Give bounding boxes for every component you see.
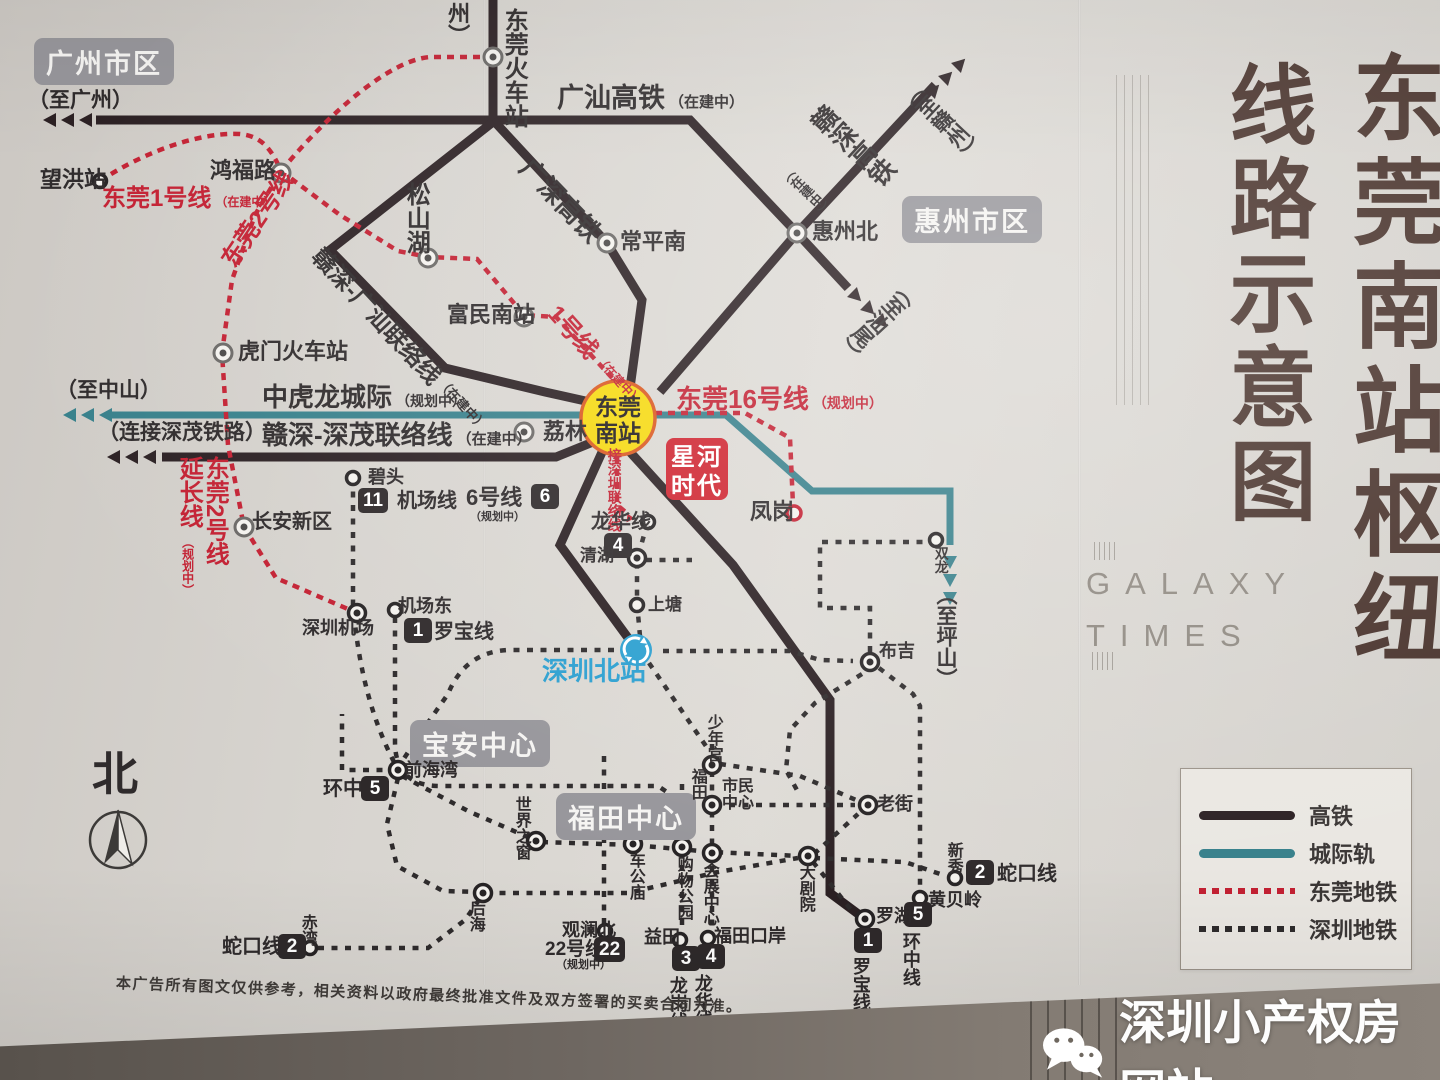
- line-label-guangshan-hsr: 广汕高铁（在建中）: [557, 84, 744, 112]
- station-label-changpingnan: 常平南: [620, 230, 686, 253]
- badge-line-1e: 1: [854, 928, 882, 953]
- legend-sample-sz-metro: [1199, 926, 1295, 932]
- station-label-szairport: 深圳机场: [302, 619, 374, 638]
- watermark-text: 深圳小产权房网站: [1119, 984, 1440, 1080]
- direction-to-guangzhou: （至广州）: [28, 90, 133, 112]
- badge-line-2w: 2: [278, 934, 306, 959]
- station-label-wanghong: 望洪站: [40, 168, 106, 191]
- station-label-songshanhu: 松山湖: [403, 182, 428, 254]
- station-label-szbei: 深圳北站: [542, 658, 646, 685]
- poster-photo: 广州市区 惠州市区 宝安中心 福田中心 （至广州） 州） 东莞火车站 广汕高铁（…: [0, 0, 1440, 1080]
- legend-row-hsr: 高铁: [1199, 803, 1353, 827]
- legend-row-dg-metro: 东莞地铁: [1199, 879, 1397, 903]
- line-label-shekou-e: 蛇口线: [997, 864, 1057, 885]
- hatch-decor-bottom: [1092, 652, 1116, 670]
- line-label-zhonghulong: 中虎龙城际（规划中）: [262, 384, 466, 411]
- line-label-dg2-ext: 东莞2号线: [202, 456, 227, 565]
- line-label-luobao-w: 罗宝线: [434, 622, 494, 643]
- line-label-yanchang: 延长线: [176, 456, 201, 528]
- station-label-shangtang: 上塘: [648, 596, 682, 614]
- station-label-hongfulu: 鸿福路: [210, 159, 276, 182]
- compass-icon: [90, 810, 146, 868]
- legend-sample-hsr: [1199, 811, 1295, 820]
- direction-to-zhongshan: （至中山）: [56, 380, 161, 402]
- station-label-qianhaiwan: 前海湾: [404, 761, 458, 780]
- station-label-xinxiu: 新秀: [944, 842, 961, 874]
- hatch-decor-top: [1094, 542, 1118, 560]
- legend-box: 高铁 城际轨 东莞地铁 深圳地铁: [1180, 768, 1412, 970]
- station-label-dajuyuan: 大剧院: [796, 864, 813, 912]
- badge-line-22: 22: [594, 937, 625, 962]
- legend-label-sz-metro: 深圳地铁: [1309, 913, 1397, 945]
- legend-label-hsr: 高铁: [1309, 799, 1353, 831]
- legend-sample-intercity: [1199, 849, 1295, 858]
- legend-row-intercity: 城际轨: [1199, 841, 1375, 865]
- station-label-huizhan: 会展中心: [700, 862, 717, 926]
- station-label-chegongmiao: 车公庙: [626, 852, 643, 900]
- line-label-huanzhong-e: 环中线: [901, 932, 920, 986]
- station-label-shijie: 世界之窗: [512, 796, 529, 860]
- region-badge-huizhou: 惠州市区: [902, 196, 1042, 243]
- station-label-lilin: 荔林: [543, 420, 587, 443]
- station-label-shuanglong: 双龙: [934, 546, 949, 574]
- line6-status: （规划中）: [470, 512, 525, 524]
- station-label-futian: 福田: [688, 768, 705, 800]
- legend-row-sz-metro: 深圳地铁: [1199, 917, 1397, 941]
- station-label-houhai: 后海: [466, 900, 483, 932]
- station-label-yitian: 益田: [644, 928, 680, 947]
- brand-latin-2: TIMES: [1086, 618, 1256, 654]
- direction-to-pingshan: （至坪山）: [934, 584, 956, 689]
- page-title: 东莞南站枢纽: [1324, 50, 1440, 674]
- station-label-dongguan-railway: 东莞火车站: [501, 8, 526, 128]
- station-label-bitou: 碧头: [368, 468, 404, 487]
- station-label-shaoniangong: 少年宫: [704, 714, 721, 762]
- line-label-ganshen-shenmao: 赣深-深茂联络线（在建中）: [262, 422, 532, 449]
- direction-connect-shenmao: （连接深茂铁路）: [98, 422, 266, 444]
- badge-line-3: 3: [672, 946, 700, 971]
- badge-line-5w: 5: [361, 776, 389, 801]
- panel-decor-lines: [1116, 75, 1150, 405]
- galaxy-times-logo: 星河 时代: [666, 438, 728, 500]
- station-label-fuminnan: 富民南站: [447, 303, 535, 326]
- station-label-fenggang: 凤岗: [750, 500, 794, 523]
- legend-sample-dg-metro: [1199, 888, 1295, 894]
- station-label-futiankouan: 福田口岸: [714, 927, 786, 946]
- station-label-jichangdong: 机场东: [398, 597, 452, 616]
- station-label-shimin: 市民 中心: [722, 779, 754, 813]
- station-label-qinghu: 清湖: [580, 547, 614, 565]
- station-label-huangbeiling: 黄贝岭: [928, 891, 982, 910]
- station-label-buji: 布吉: [879, 642, 915, 661]
- watermark: 深圳小产权房网站: [1042, 984, 1440, 1080]
- station-label-humen: 虎门火车站: [238, 340, 348, 363]
- station-label-gouwu: 购物公园: [674, 856, 691, 920]
- line-label-dg16: 东莞16号线（规划中）: [676, 386, 883, 413]
- legend-label-intercity: 城际轨: [1309, 837, 1375, 869]
- station-label-laojie: 老街: [877, 795, 913, 814]
- line-label-longhua-n: 龙华线: [591, 512, 651, 533]
- region-badge-guangzhou: 广州市区: [34, 38, 174, 85]
- page-subtitle: 线路示意图: [1202, 60, 1328, 530]
- badge-line-4s: 4: [697, 944, 725, 969]
- badge-line-6: 6: [531, 484, 559, 509]
- brand-latin-1: GALAXY: [1086, 566, 1300, 602]
- line-label-jichang: 机场线: [397, 491, 457, 512]
- line-label-shekou-w: 蛇口线: [222, 937, 282, 958]
- line-label-luobao-e: 罗宝线: [851, 957, 870, 1011]
- dongguan-south-station-label: 东莞 南站: [582, 394, 654, 447]
- wechat-icon: [1042, 1021, 1105, 1080]
- direction-zhou: 州）: [446, 2, 469, 46]
- station-label-huizhoubei: 惠州北: [812, 220, 878, 243]
- yanchang-status: （规划中）: [181, 536, 194, 596]
- region-badge-futian: 福田中心: [556, 793, 696, 840]
- legend-label-dg-metro: 东莞地铁: [1309, 875, 1397, 907]
- line-label-line6: 6号线: [466, 486, 522, 509]
- badge-line-11: 11: [358, 488, 388, 513]
- badge-line-2e: 2: [966, 860, 994, 885]
- north-label: 北: [92, 750, 138, 798]
- badge-line-1w: 1: [404, 618, 432, 643]
- station-label-changan: 长安新区: [252, 512, 332, 533]
- station-label-luohu: 罗湖: [876, 907, 912, 926]
